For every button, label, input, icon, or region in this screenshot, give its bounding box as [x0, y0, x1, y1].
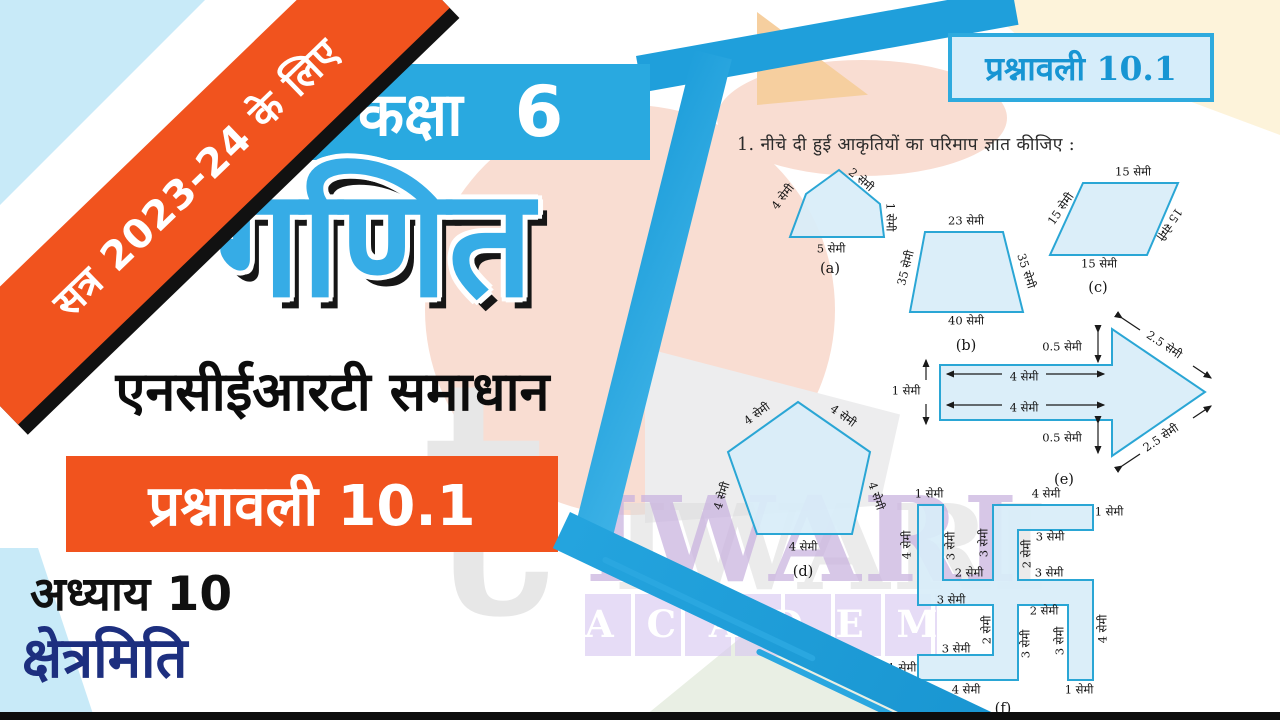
figure-c-parallelogram: [1050, 183, 1178, 255]
figure-d-pentagon: [728, 402, 870, 534]
figure-a-quadrilateral: [790, 170, 884, 237]
thumbnail-canvas: t IWARI IWARI A C A D E M Y सत्र 2023-24…: [0, 0, 1280, 720]
bottom-black-bar: [0, 712, 1280, 720]
figure-b-trapezium: [910, 232, 1023, 312]
figure-f-cross: [918, 505, 1093, 680]
figure-e-arrow: [940, 329, 1205, 456]
